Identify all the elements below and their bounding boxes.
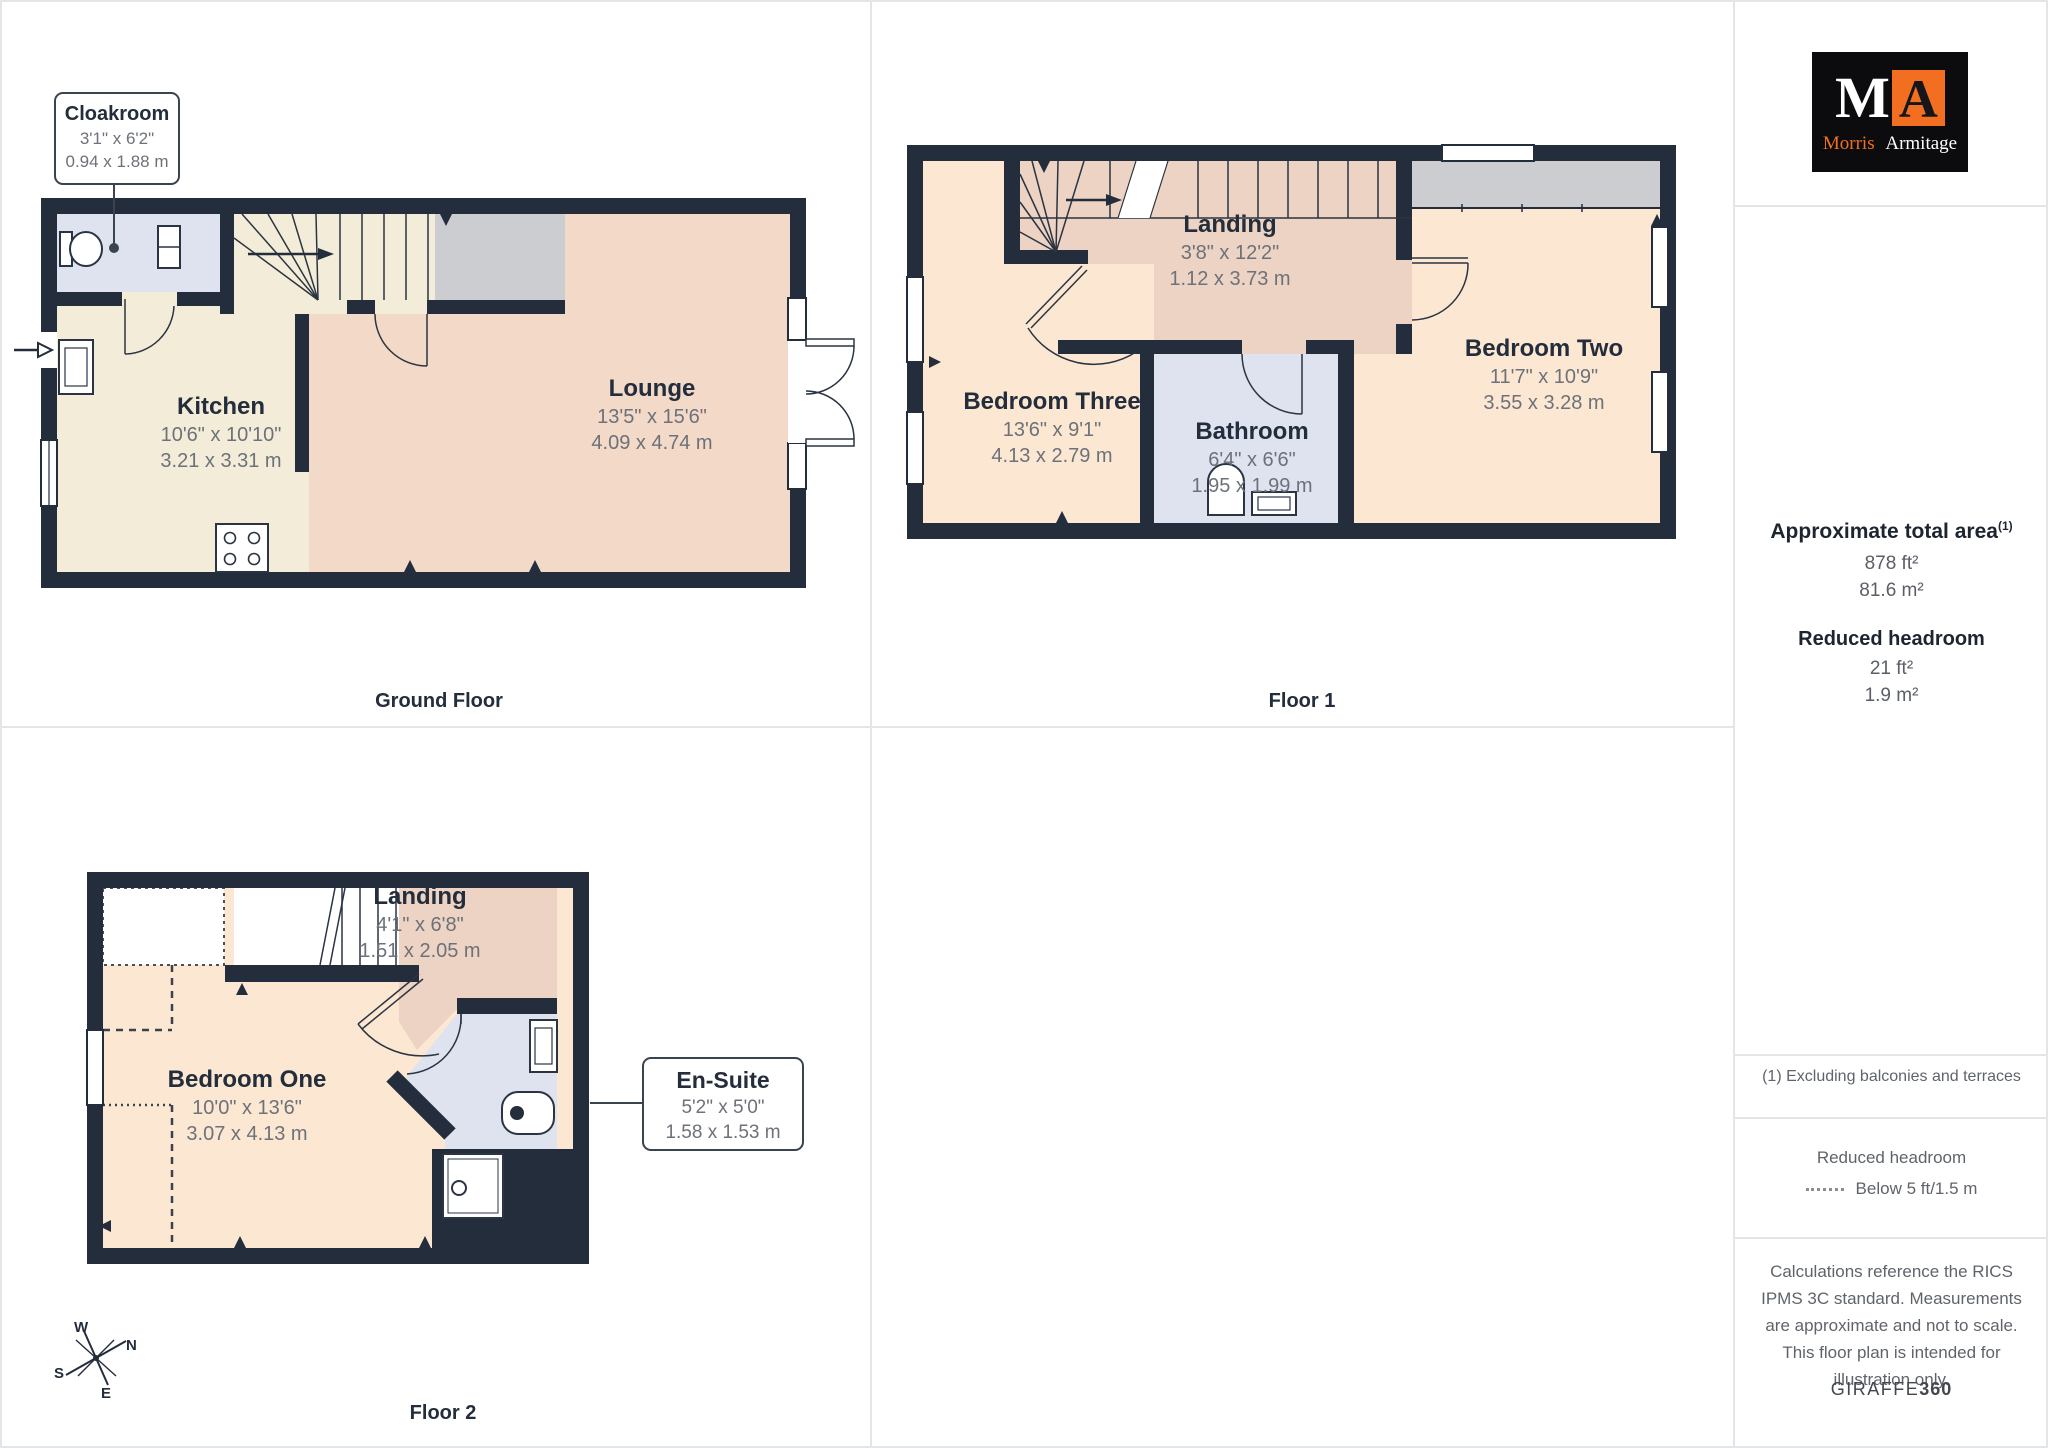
room-name: Bathroom [1191, 417, 1312, 447]
legend-item-text: Below 5 ft/1.5 m [1856, 1179, 1978, 1198]
callout-ensuite: En-Suite 5'2" x 5'0" 1.58 x 1.53 m [642, 1057, 804, 1151]
logo-letter-a: A [1892, 70, 1945, 126]
room-dims-metric: 1.95 x 1.99 m [1191, 473, 1312, 499]
room-label-kitchen: Kitchen 10'6" x 10'10" 3.21 x 3.31 m [160, 392, 281, 474]
legend-title: Reduced headroom [1733, 1148, 2048, 1168]
built-in-wardrobe [1410, 161, 1660, 212]
room-name: Landing [1169, 210, 1290, 240]
reduced-headroom-metric: 1.9 m² [1733, 685, 2048, 707]
floorplan-sheet: N E S W Kitchen 10'6" x 10'10" 3.21 x 3.… [0, 0, 2048, 1448]
room-dims-imperial: 11'7" x 10'9" [1465, 364, 1623, 390]
room-dims-imperial: 5'2" x 5'0" [644, 1095, 802, 1120]
room-dims-imperial: 13'6" x 9'1" [963, 417, 1140, 443]
caption-ground-floor: Ground Floor [375, 690, 503, 713]
room-dims-imperial: 4'1" x 6'8" [359, 912, 480, 938]
room-dims-imperial: 10'6" x 10'10" [160, 422, 281, 448]
compass-e: E [101, 1385, 111, 1402]
room-dims-metric: 0.94 x 1.88 m [56, 150, 178, 173]
total-area-imperial: 878 ft² [1733, 553, 2048, 575]
room-name: En-Suite [644, 1065, 802, 1095]
room-name: Landing [359, 882, 480, 912]
disclaimer-text: Calculations reference the RICS IPMS 3C … [1761, 1258, 2023, 1393]
cloakroom-callout-dot [109, 243, 119, 253]
sidebar-divider-1 [1733, 205, 2048, 207]
logo-name-last: Armitage [1885, 133, 1957, 154]
room-name: Bedroom One [168, 1065, 327, 1095]
room-label-bedroom-one: Bedroom One 10'0" x 13'6" 3.07 x 4.13 m [168, 1065, 327, 1147]
callout-cloakroom: Cloakroom 3'1" x 6'2" 0.94 x 1.88 m [54, 92, 180, 185]
room-dims-metric: 3.21 x 3.31 m [160, 448, 281, 474]
logo-initials: M A [1835, 69, 1945, 127]
room-dims-imperial: 3'8" x 12'2" [1169, 240, 1290, 266]
total-area-label: Approximate total area(1) [1733, 519, 2048, 544]
entrance-arrow-icon [14, 332, 57, 368]
basin-icon [158, 226, 180, 268]
reduced-headroom-area [103, 888, 224, 965]
logo-letter-m: M [1835, 69, 1890, 127]
compass-w: W [74, 1319, 89, 1336]
dotted-line-icon [1806, 1188, 1844, 1191]
legend-item: Below 5 ft/1.5 m [1733, 1179, 2048, 1199]
shower-icon [443, 1154, 503, 1218]
room-dims-metric: 4.09 x 4.74 m [591, 430, 712, 456]
ensuite-callout-line [590, 1102, 642, 1104]
basin-icon [530, 1020, 557, 1072]
room-dims-imperial: 13'5" x 15'6" [591, 404, 712, 430]
room-name: Lounge [591, 374, 712, 404]
room-label-bedroom-two: Bedroom Two 11'7" x 10'9" 3.55 x 3.28 m [1465, 334, 1623, 416]
total-area-label-text: Approximate total area [1770, 520, 1998, 543]
room-dims-metric: 1.12 x 3.73 m [1169, 266, 1290, 292]
room-name: Bedroom Three [963, 387, 1140, 417]
window [87, 1030, 103, 1105]
room-name: Cloakroom [56, 101, 178, 127]
toilet-icon [502, 1092, 554, 1134]
vertical-divider-sidebar [1733, 2, 1735, 1448]
room-dims-imperial: 6'4" x 6'6" [1191, 447, 1312, 473]
caption-floor-1: Floor 1 [1269, 690, 1336, 713]
giraffe-360-text: 360 [1919, 1379, 1952, 1399]
room-label-landing-f1: Landing 3'8" x 12'2" 1.12 x 3.73 m [1169, 210, 1290, 292]
sidebar-divider-3 [1733, 1117, 2048, 1119]
room-label-landing-f2: Landing 4'1" x 6'8" 1.51 x 2.05 m [359, 882, 480, 964]
giraffe-text: GIRAFFE [1831, 1379, 1920, 1399]
french-doors [788, 339, 854, 446]
room-label-lounge: Lounge 13'5" x 15'6" 4.09 x 4.74 m [591, 374, 712, 456]
room-dims-metric: 3.07 x 4.13 m [168, 1121, 327, 1147]
room-dims-metric: 4.13 x 2.79 m [963, 443, 1140, 469]
room-dims-metric: 1.58 x 1.53 m [644, 1120, 802, 1145]
reduced-headroom-imperial: 21 ft² [1733, 658, 2048, 680]
room-dims-imperial: 3'1" x 6'2" [56, 127, 178, 150]
room-dims-imperial: 10'0" x 13'6" [168, 1095, 327, 1121]
understairs-cupboard [435, 214, 565, 300]
giraffe360-wordmark: GIRAFFE360 [1733, 1379, 2048, 1400]
room-label-bathroom: Bathroom 6'4" x 6'6" 1.95 x 1.99 m [1191, 417, 1312, 499]
compass-rose: N E S W [54, 1319, 137, 1402]
cloakroom-callout-line [113, 185, 115, 245]
morris-armitage-logo: M A Morris Armitage [1812, 52, 1968, 172]
room-name: Kitchen [160, 392, 281, 422]
room-name: Bedroom Two [1465, 334, 1623, 364]
reduced-headroom-label: Reduced headroom [1733, 628, 2048, 651]
caption-floor-2: Floor 2 [410, 1402, 477, 1425]
disclaimer-block: Calculations reference the RICS IPMS 3C … [1733, 1258, 2048, 1393]
sidebar-divider-2 [1733, 1054, 2048, 1056]
stove-icon [216, 524, 268, 572]
footnote-marker: (1) [1998, 519, 2013, 533]
toilet-icon [60, 232, 102, 266]
compass-n: N [126, 1337, 137, 1354]
compass-s: S [54, 1365, 64, 1382]
room-label-bedroom-three: Bedroom Three 13'6" x 9'1" 4.13 x 2.79 m [963, 387, 1140, 469]
sidebar-divider-4 [1733, 1237, 2048, 1239]
room-dims-metric: 1.51 x 2.05 m [359, 938, 480, 964]
kitchen-sink-icon [59, 340, 93, 394]
area-footnote: (1) Excluding balconies and terraces [1733, 1068, 2048, 1086]
logo-wordmark: Morris Armitage [1823, 133, 1957, 155]
total-area-metric: 81.6 m² [1733, 580, 2048, 602]
room-dims-metric: 3.55 x 3.28 m [1465, 390, 1623, 416]
logo-name-first: Morris [1823, 133, 1875, 154]
